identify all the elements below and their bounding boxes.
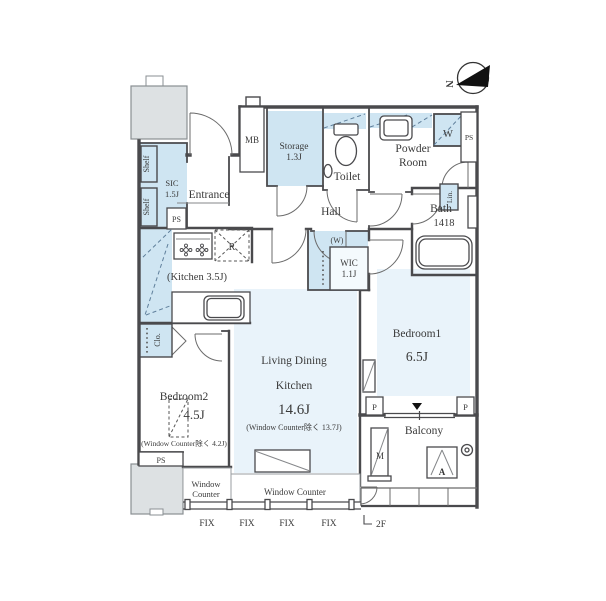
stove — [174, 233, 212, 259]
label-ldk-line2: Kitchen — [276, 380, 313, 392]
label-mb: MB — [245, 135, 259, 145]
label-pipe-left: P — [372, 402, 377, 412]
label-bedroom2-name: Bedroom2 — [160, 391, 209, 403]
label-pipe-right: P — [463, 402, 468, 412]
toilet-sink — [324, 165, 332, 178]
label-hall: Hall — [321, 206, 341, 218]
label-bath-name: Bath — [430, 203, 452, 215]
label-fix-2: FIX — [239, 519, 254, 529]
label-powder-line1: Powder — [395, 143, 430, 155]
label-bedroom2-note: (Window Counter除く 4.2J) — [141, 438, 227, 448]
label-sic-size: 1.5J — [165, 189, 180, 199]
label-wic-size: 1.1J — [342, 269, 357, 279]
label-bedroom1-size: 6.5J — [406, 349, 428, 364]
label-storage-size: 1.3J — [286, 153, 302, 163]
entrance-door — [190, 113, 232, 155]
label-shelf-upper: Shelf — [142, 155, 151, 172]
label-sic-name: SIC — [165, 178, 179, 188]
label-storage-name: Storage — [279, 142, 308, 152]
drain-cap-inner — [465, 448, 469, 452]
label-floor-tag: 2F — [376, 520, 386, 530]
label-bedroom1-name: Bedroom1 — [393, 328, 442, 340]
corridor-block-top-left — [131, 86, 187, 139]
floor-tag-bracket — [364, 515, 372, 524]
bath-counter — [468, 196, 477, 228]
toilet-tank — [334, 124, 358, 135]
corridor-block-bottom-left — [131, 464, 183, 514]
label-powder-line2: Room — [399, 157, 427, 169]
label-fix-4: FIX — [321, 519, 336, 529]
label-wic-name: WIC — [340, 258, 358, 268]
compass: N — [443, 63, 490, 94]
label-window-counter-small-1: Window — [192, 479, 222, 489]
label-meter: M — [376, 451, 384, 461]
label-ps-bedroom2: PS — [157, 456, 166, 465]
label-shelf-lower: Shelf — [142, 198, 151, 215]
label-bath-size: 1418 — [434, 218, 455, 229]
compass-north-label: N — [443, 80, 454, 88]
label-ldk-size: 14.6J — [278, 402, 310, 418]
label-ps-entrance: PS — [172, 215, 181, 224]
label-balcony: Balcony — [405, 425, 444, 437]
toilet-bowl — [336, 137, 357, 166]
label-ldk-line1: Living Dining — [261, 355, 327, 367]
label-fix-3: FIX — [279, 519, 294, 529]
label-ps-powder: PS — [465, 133, 473, 142]
label-toilet: Toilet — [334, 171, 361, 183]
label-ldk-note: (Window Counter除く 13.7J) — [246, 422, 342, 432]
kitchen-sink-inner — [207, 299, 241, 318]
label-refrigerator: R — [229, 242, 236, 253]
meter-base — [368, 476, 391, 481]
floorplan-drawing: N Entrance Shelf Shelf SIC 1.5J PS MB St… — [0, 0, 606, 601]
label-window-counter-small-2: Counter — [192, 489, 220, 499]
corridor-notch — [150, 509, 163, 515]
label-aircon: A — [439, 467, 446, 477]
label-entrance: Entrance — [189, 189, 230, 201]
washbasin-bowl — [384, 120, 408, 136]
label-window-counter-main: Window Counter — [264, 487, 326, 497]
wall-entrance-top — [187, 107, 241, 155]
label-linen: Lin. — [445, 191, 454, 203]
label-closet: Clo. — [153, 333, 162, 347]
label-kitchen: (Kitchen 3.5J) — [167, 272, 228, 283]
floorplan-page: N Entrance Shelf Shelf SIC 1.5J PS MB St… — [0, 0, 606, 601]
label-bedroom2-size: 4.5J — [183, 407, 204, 422]
label-fix-1: FIX — [199, 519, 214, 529]
bathtub-inner — [419, 239, 469, 266]
label-washer: W — [443, 129, 453, 140]
label-wic-note: (W) — [331, 236, 344, 245]
